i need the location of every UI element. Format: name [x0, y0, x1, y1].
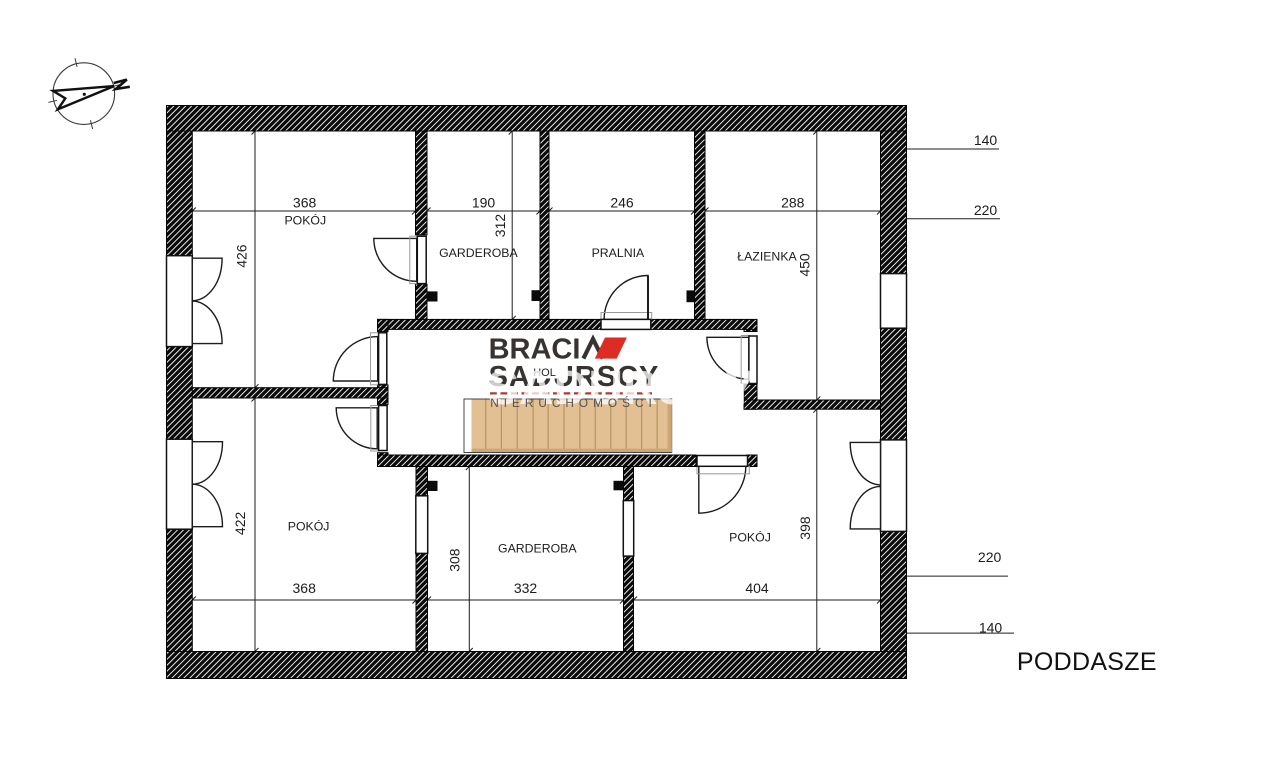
svg-text:GARDEROBA: GARDEROBA	[439, 246, 518, 260]
svg-text:220: 220	[978, 549, 1002, 565]
svg-text:POKÓJ: POKÓJ	[288, 519, 330, 534]
svg-text:422: 422	[232, 512, 248, 536]
svg-text:308: 308	[447, 548, 463, 572]
svg-text:POKÓJ: POKÓJ	[729, 530, 771, 545]
svg-text:NIERUCHOMOŚCI: NIERUCHOMOŚCI	[490, 396, 657, 410]
svg-text:332: 332	[514, 580, 538, 596]
svg-text:190: 190	[472, 195, 496, 211]
svg-text:ŁAZIENKA: ŁAZIENKA	[737, 249, 797, 263]
svg-text:220: 220	[974, 202, 998, 218]
svg-text:246: 246	[610, 195, 634, 211]
svg-text:450: 450	[796, 253, 812, 277]
svg-text:288: 288	[781, 195, 805, 211]
svg-text:404: 404	[745, 580, 769, 596]
svg-text:PODDASZE: PODDASZE	[1017, 648, 1157, 676]
svg-text:368: 368	[293, 580, 317, 596]
svg-text:312: 312	[492, 214, 508, 238]
svg-text:426: 426	[233, 244, 249, 268]
svg-text:POKÓJ: POKÓJ	[284, 213, 326, 228]
svg-text:PRALNIA: PRALNIA	[592, 246, 645, 260]
svg-text:140: 140	[974, 132, 998, 148]
svg-text:398: 398	[797, 516, 813, 540]
svg-text:GARDEROBA: GARDEROBA	[498, 541, 577, 555]
svg-text:368: 368	[293, 195, 317, 211]
